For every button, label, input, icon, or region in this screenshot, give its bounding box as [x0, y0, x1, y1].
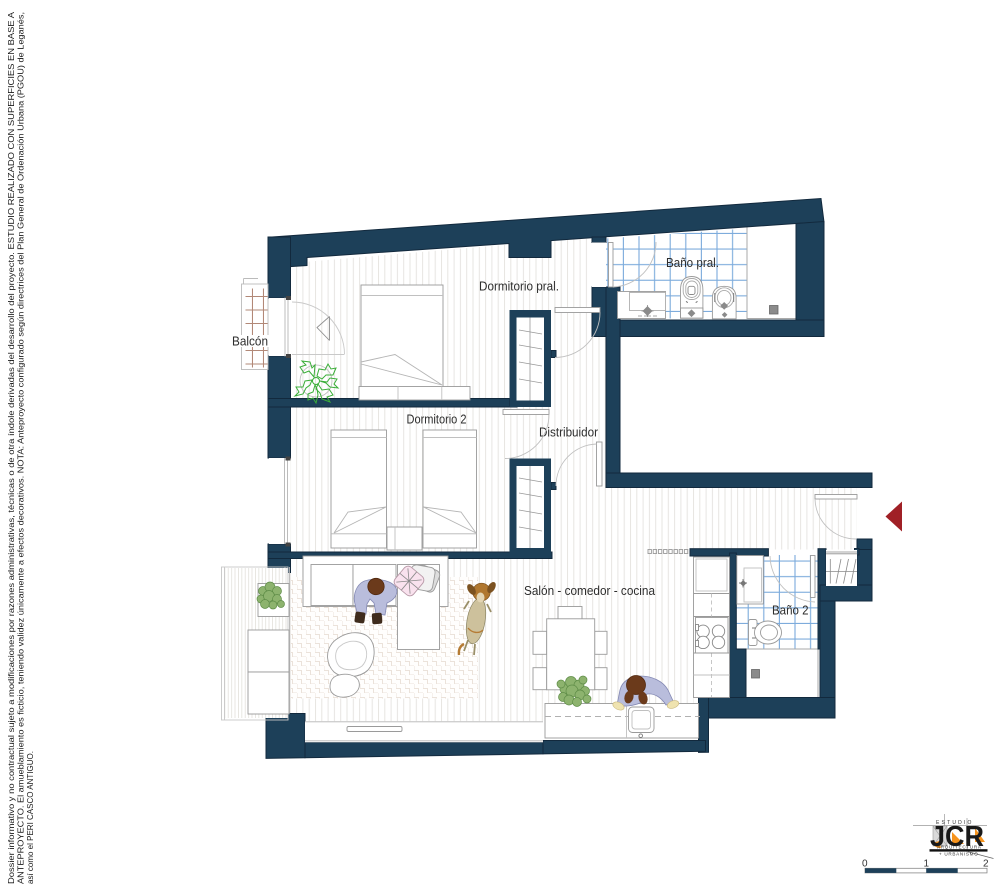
svg-text:Baño 2: Baño 2 [772, 603, 809, 618]
svg-text:ARQUITECTURA: ARQUITECTURA [937, 845, 982, 850]
svg-text:así como el PERI CASCO ANTIGUO: así como el PERI CASCO ANTIGUO. [26, 751, 35, 884]
svg-text:Balcón: Balcón [232, 334, 268, 349]
svg-text:Baño pral.: Baño pral. [666, 255, 719, 270]
svg-text:0: 0 [862, 859, 868, 870]
svg-text:ANTEPROYECTO. El amueblamiento: ANTEPROYECTO. El amueblamiento es fictic… [17, 12, 26, 884]
svg-text:Salón - comedor - cocina: Salón - comedor - cocina [524, 583, 656, 598]
svg-text:Distribuidor: Distribuidor [539, 425, 599, 440]
svg-text:Dossier informativo y no contr: Dossier informativo y no contractual suj… [7, 11, 16, 884]
svg-text:Dormitorio 2: Dormitorio 2 [407, 412, 467, 427]
svg-text:Dormitorio pral.: Dormitorio pral. [479, 279, 559, 294]
svg-text:2: 2 [983, 859, 989, 870]
svg-text:1: 1 [924, 859, 930, 870]
svg-text:+ URBANISMO: + URBANISMO [939, 852, 978, 857]
